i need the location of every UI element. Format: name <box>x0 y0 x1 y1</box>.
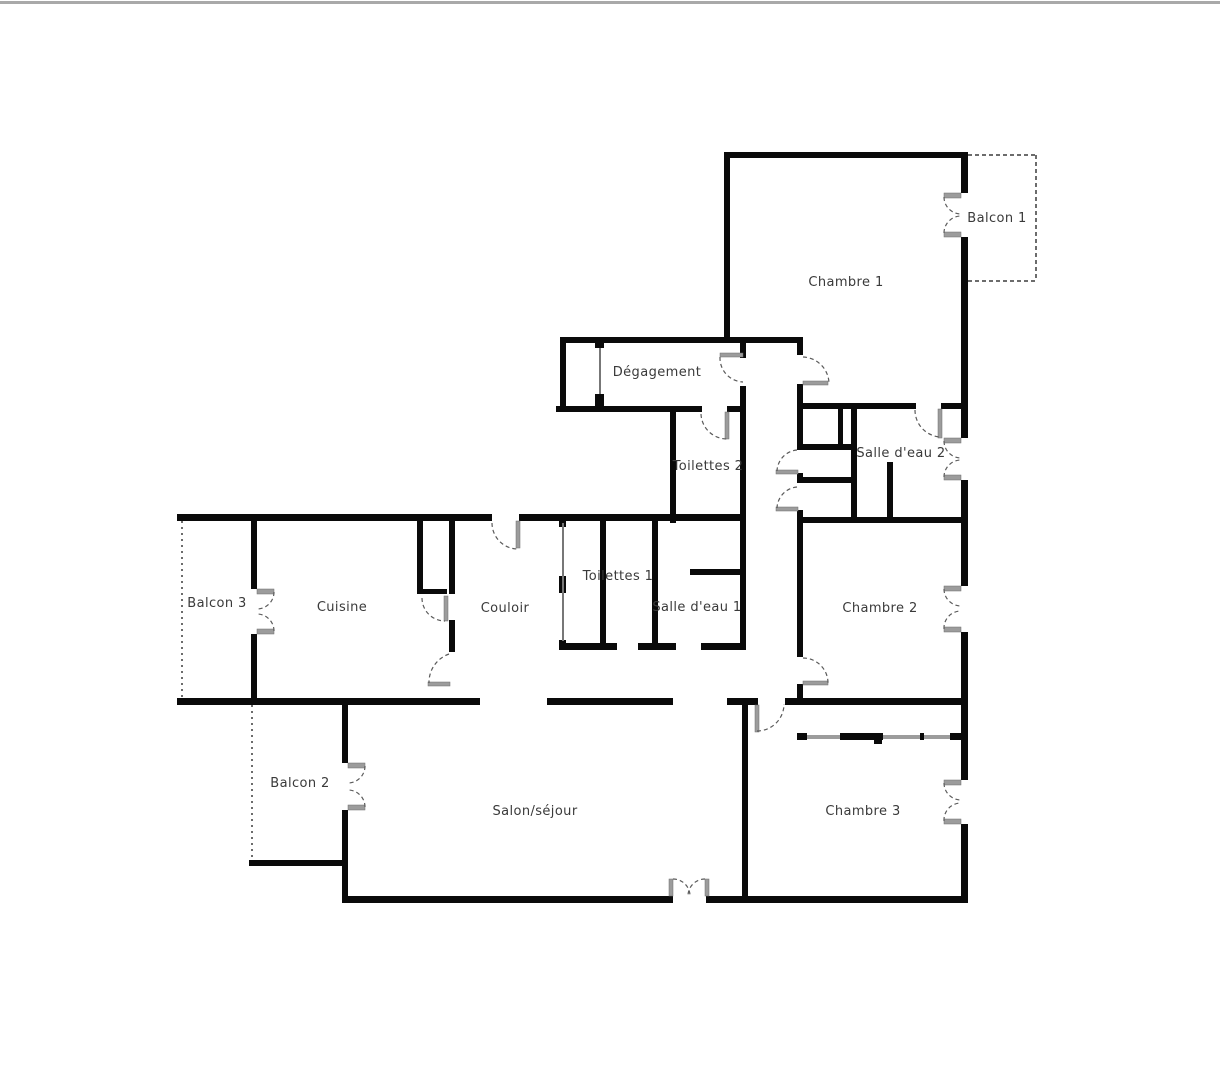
balcon3-window-arcs <box>257 592 274 631</box>
toilettes2-door-leaf <box>725 412 729 439</box>
room-label-chambre2: Chambre 2 <box>842 601 917 616</box>
balcony-outlines <box>182 155 1036 860</box>
toilettes2-door-arc <box>701 414 727 439</box>
balcon1-window-arcs <box>944 197 961 233</box>
cuisine-door-leaf <box>428 682 450 686</box>
degagement-door-arc <box>720 357 743 382</box>
salon-south-door-arcs <box>673 879 705 896</box>
room-label-toilettes1: Toilettes 1 <box>582 569 654 584</box>
salle-eau2-door-arc <box>915 410 940 437</box>
room-label-salle-eau1: Salle d'eau 1 <box>652 600 741 615</box>
chambre2-door-arc <box>803 658 828 683</box>
room-label-degagement: Dégagement <box>613 365 701 380</box>
room-label-salon: Salon/séjour <box>492 804 577 819</box>
salle-eau2-door-leaf <box>938 409 942 438</box>
chambre3-door-leaf <box>755 705 759 732</box>
cuisine-cell-door-arc <box>422 598 445 621</box>
balcon2-window-arcs <box>348 766 365 807</box>
salle-eau2-window-arcs <box>944 441 961 477</box>
thin-partitions <box>562 348 601 641</box>
entrance-door-arc <box>492 523 518 549</box>
closet-b-door-arc <box>777 450 797 471</box>
floor-plan-page: Chambre 1 Balcon 1 Dégagement Toilettes … <box>0 0 1220 1080</box>
room-label-salle-eau2: Salle d'eau 2 <box>856 446 945 461</box>
room-label-cuisine: Cuisine <box>317 600 367 615</box>
room-label-toilettes2: Toilettes 2 <box>672 459 744 474</box>
cuisine-cell-door-leaf <box>444 596 448 621</box>
room-label-couloir: Couloir <box>481 601 530 616</box>
degagement-door-leaf <box>720 353 743 357</box>
closet-c-door-leaf <box>776 507 798 511</box>
chambre2-door-leaf <box>803 681 828 685</box>
room-label-chambre1: Chambre 1 <box>808 275 883 290</box>
room-label-balcon2: Balcon 2 <box>270 776 329 791</box>
floor-plan-drawing: Chambre 1 Balcon 1 Dégagement Toilettes … <box>0 0 1220 1080</box>
closet-b-door-leaf <box>776 470 798 474</box>
chambre1-door-arc <box>803 357 829 383</box>
closet-c-door-arc <box>777 487 797 508</box>
room-label-balcon1: Balcon 1 <box>967 211 1026 226</box>
chambre3-window-arcs <box>944 783 961 821</box>
cuisine-door-arc <box>429 654 449 683</box>
chambre2-window-arcs <box>944 589 961 629</box>
chambre3-door-arc <box>757 704 784 731</box>
room-label-chambre3: Chambre 3 <box>825 804 900 819</box>
entrance-door-leaf <box>516 521 520 548</box>
chambre1-door-leaf <box>803 381 828 385</box>
windows-layer <box>257 193 961 896</box>
room-label-balcon3: Balcon 3 <box>187 596 246 611</box>
